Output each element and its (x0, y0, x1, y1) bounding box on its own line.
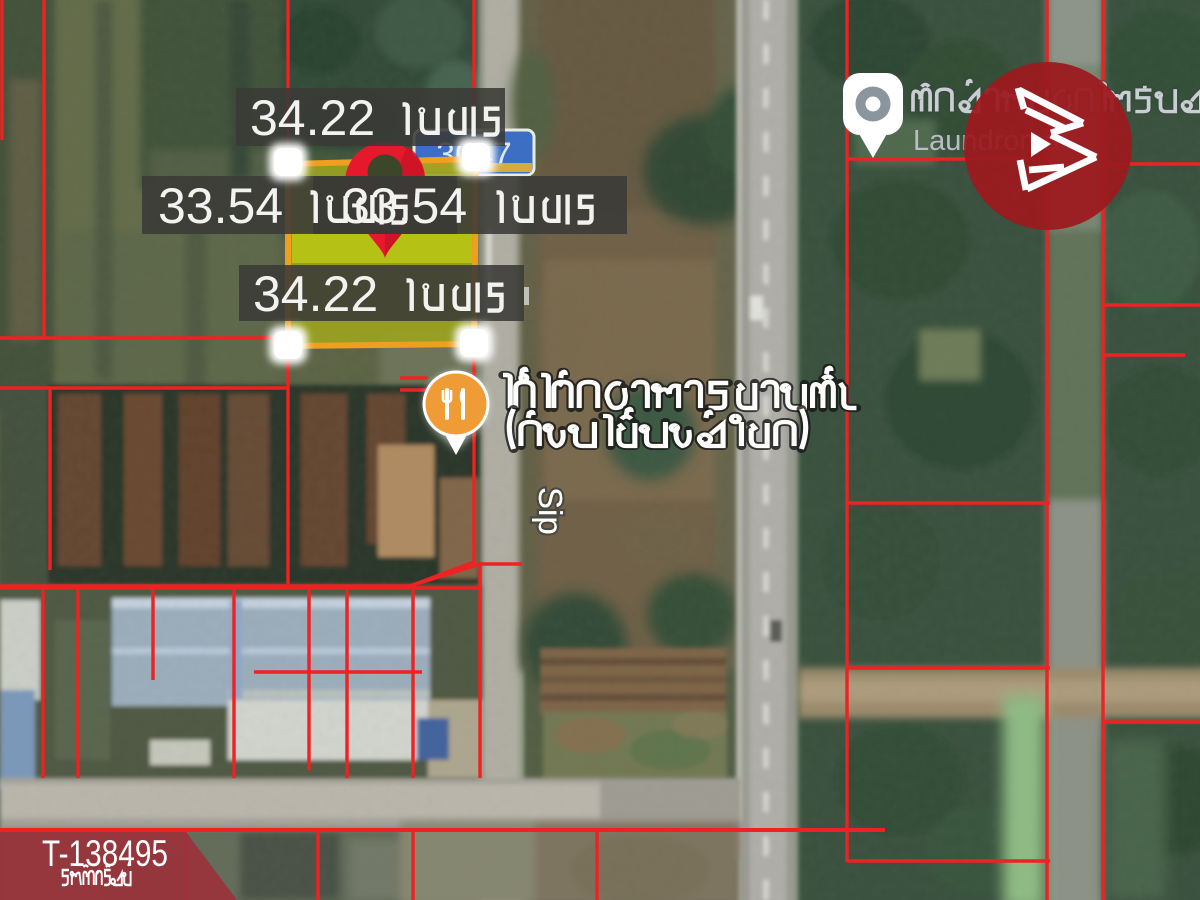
svg-text:33.54: 33.54 (342, 178, 467, 234)
svg-text:Sip: Sip (532, 487, 569, 535)
svg-text:33.54: 33.54 (158, 178, 283, 234)
svg-text:34.22: 34.22 (250, 90, 375, 146)
svg-text:T-138495: T-138495 (42, 833, 168, 874)
svg-text:34.22: 34.22 (253, 266, 378, 322)
